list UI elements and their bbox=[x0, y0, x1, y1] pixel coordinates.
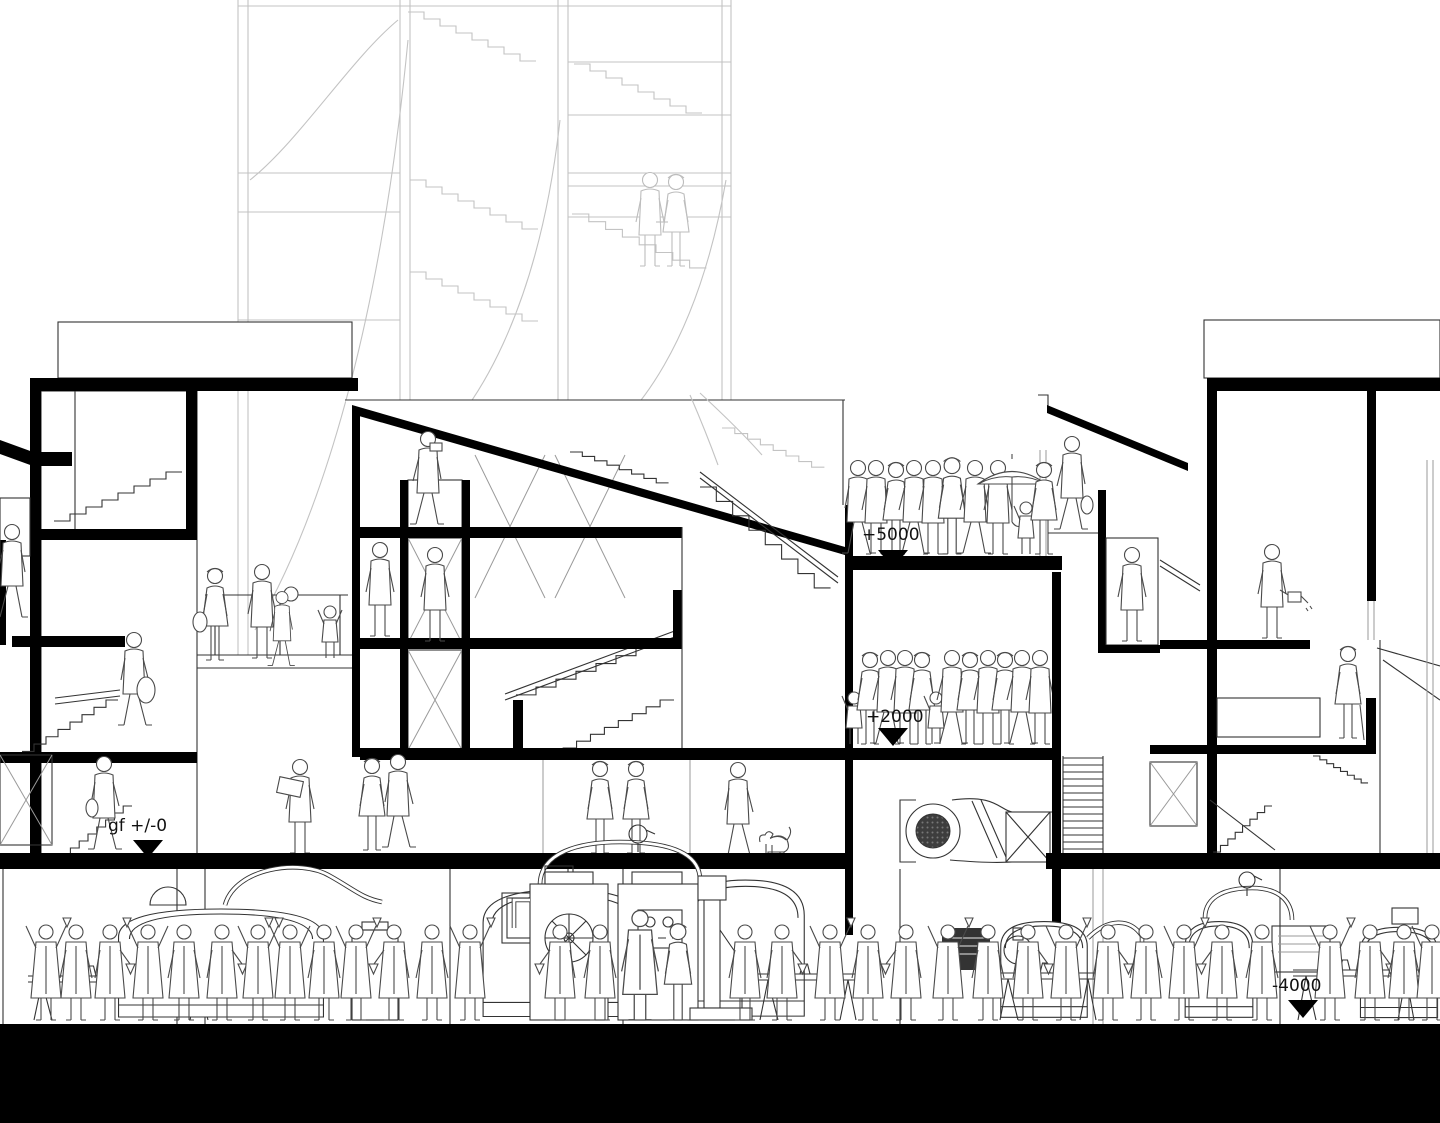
ground-floor-slab bbox=[1046, 853, 1440, 869]
wall-stub bbox=[673, 590, 682, 638]
tower-stair-flight bbox=[410, 272, 538, 321]
right-roof-slab bbox=[1207, 378, 1440, 391]
ground-band bbox=[0, 1024, 1440, 1123]
scientist-figure bbox=[369, 925, 409, 1020]
architectural-section-canvas: +5000 +2000 gf +/-0 -4000 bbox=[0, 0, 1440, 1123]
shoulder-bag bbox=[86, 799, 98, 817]
level-marker-plus2000: +2000 bbox=[866, 707, 924, 746]
sectional-stair-louvers bbox=[1063, 756, 1103, 866]
wall-stub bbox=[513, 700, 523, 748]
backpack bbox=[137, 677, 155, 703]
vessel-port bbox=[150, 887, 186, 905]
camera bbox=[430, 443, 442, 451]
right-interior-wall bbox=[1367, 391, 1376, 601]
tower-stair-flight bbox=[408, 12, 536, 61]
left-exterior-wall bbox=[30, 378, 41, 860]
bay-right-wall bbox=[1052, 572, 1061, 938]
person-figure bbox=[248, 565, 276, 659]
right-building bbox=[1150, 320, 1440, 858]
right-building-interior bbox=[1217, 391, 1440, 855]
level-label-ground: gf +/-0 bbox=[108, 816, 167, 836]
child-arms-up-figure bbox=[318, 606, 342, 658]
pressure-gauge-icon bbox=[1239, 872, 1255, 888]
level-label-minus4000: -4000 bbox=[1272, 976, 1321, 996]
scientist-figure bbox=[881, 925, 921, 1020]
hvac-duct bbox=[900, 799, 1052, 863]
person-shopper-figure bbox=[1054, 437, 1088, 530]
left-floor-slab bbox=[30, 529, 197, 540]
right-roof-parapet bbox=[1204, 320, 1440, 378]
plus5000-terrace-slab bbox=[853, 556, 1062, 570]
scientist-figure bbox=[1310, 918, 1355, 1020]
watering-can bbox=[1288, 592, 1301, 602]
scientist-figure bbox=[1130, 925, 1162, 1020]
tower-stair-flight bbox=[410, 180, 538, 229]
level-label-plus2000: +2000 bbox=[866, 707, 924, 727]
left-interior-wall bbox=[186, 391, 197, 540]
tower-stair-flight bbox=[574, 64, 702, 113]
fan-icon bbox=[916, 814, 950, 848]
crowd-plus2000 bbox=[842, 651, 1054, 745]
person-in-elevator-figure bbox=[1118, 548, 1146, 642]
ground-floor-slab bbox=[0, 853, 845, 869]
scientist-figure bbox=[852, 925, 884, 1020]
right-floor-slab bbox=[1160, 640, 1310, 649]
middle-floor-slab bbox=[360, 638, 682, 649]
right-floor-slab bbox=[1150, 745, 1372, 754]
person-figure bbox=[1026, 651, 1054, 745]
scientist-figure bbox=[1093, 925, 1133, 1020]
person-figure bbox=[1031, 463, 1057, 555]
left-building bbox=[0, 322, 358, 860]
scientist-figure bbox=[416, 925, 448, 1020]
middle-left-wall bbox=[352, 408, 360, 757]
shopping-bag bbox=[1081, 496, 1093, 514]
person-reading-figure bbox=[286, 760, 314, 854]
right-left-wall bbox=[1207, 391, 1217, 858]
scientist-figure bbox=[60, 925, 92, 1020]
hand-bag bbox=[193, 612, 207, 632]
plus2000-floor-slab bbox=[360, 748, 1052, 760]
annex-elevator bbox=[1098, 490, 1160, 653]
gap-terrace bbox=[193, 565, 352, 669]
fan-bracket bbox=[900, 800, 916, 862]
level-label-plus5000: +5000 bbox=[862, 525, 920, 545]
left-floor-slab bbox=[12, 636, 125, 647]
section-drawing: +5000 +2000 gf +/-0 -4000 bbox=[0, 0, 1440, 1123]
right-annex bbox=[1038, 395, 1200, 653]
left-roof-slab bbox=[30, 378, 358, 391]
left-roof-parapet bbox=[58, 322, 352, 378]
middle-floor-slab bbox=[360, 527, 682, 538]
wall-stub bbox=[1366, 698, 1376, 754]
